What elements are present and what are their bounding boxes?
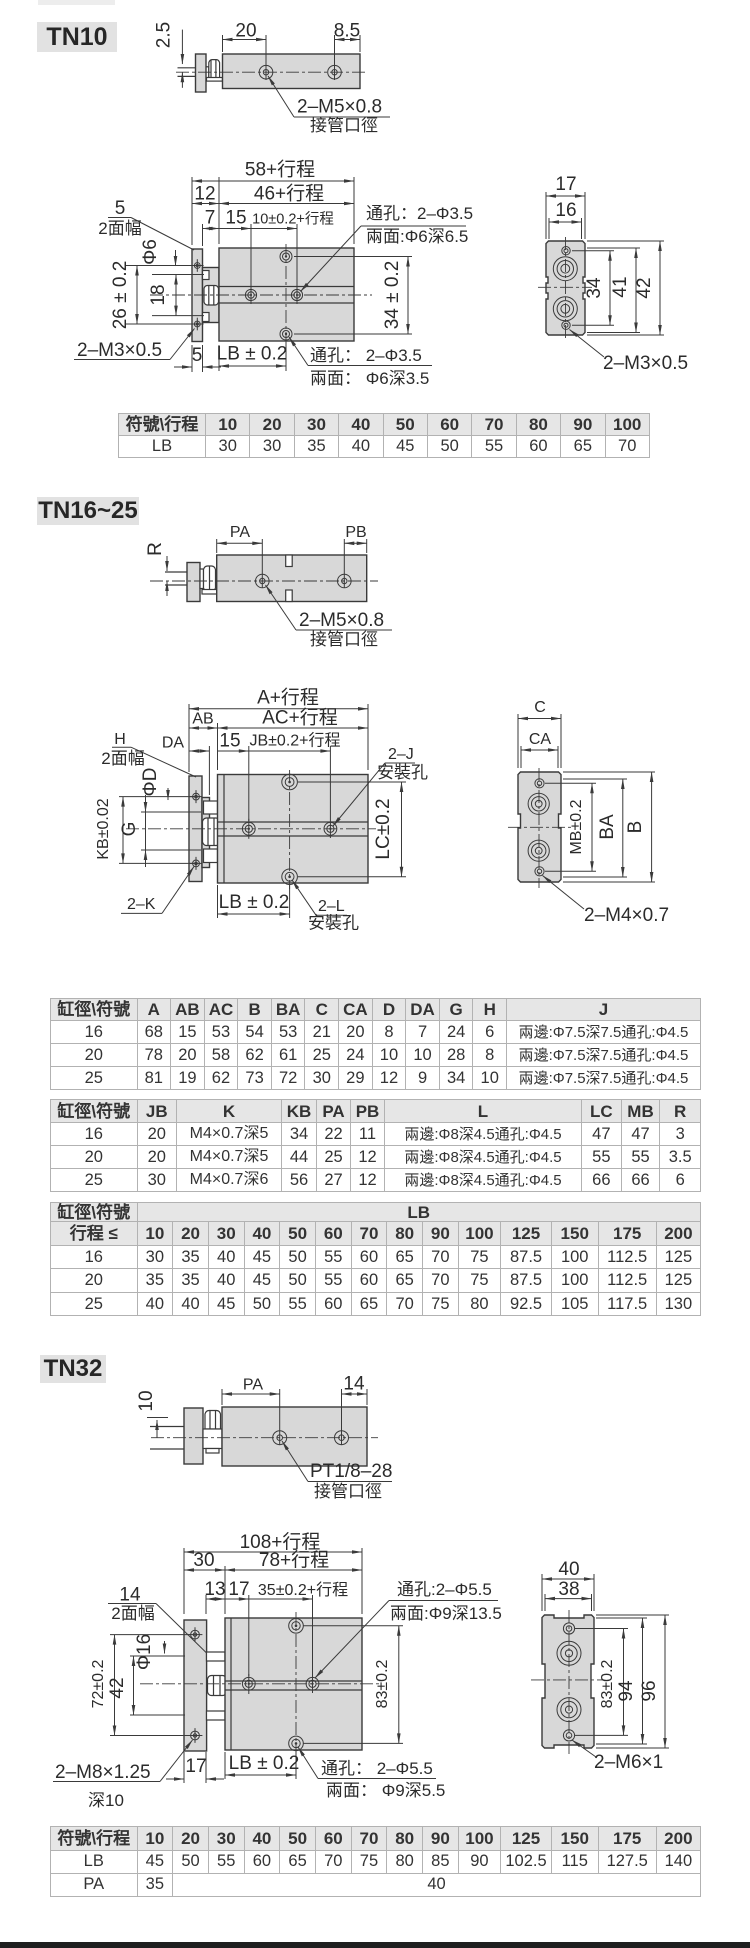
svg-text:18: 18 (148, 284, 169, 305)
svg-text:通孔：2–Φ3.5: 通孔：2–Φ3.5 (366, 204, 473, 223)
svg-text:2–M3×0.5: 2–M3×0.5 (77, 340, 162, 361)
svg-text:83±0.2: 83±0.2 (374, 1659, 391, 1708)
svg-text:14: 14 (119, 1585, 141, 1606)
svg-text:7: 7 (205, 208, 216, 229)
svg-text:2–M5×0.8: 2–M5×0.8 (297, 97, 382, 118)
svg-text:46+行程: 46+行程 (254, 183, 324, 205)
svg-text:5: 5 (115, 198, 126, 219)
svg-text:KB±0.02: KB±0.02 (95, 798, 112, 859)
svg-text:2面幅: 2面幅 (111, 1604, 154, 1623)
svg-text:2–K: 2–K (127, 896, 156, 913)
svg-text:58+行程: 58+行程 (245, 159, 315, 181)
svg-text:15: 15 (219, 731, 240, 752)
svg-text:15: 15 (225, 208, 246, 229)
svg-text:PT1/8–28: PT1/8–28 (310, 1461, 392, 1482)
svg-text:通孔： 2–Φ3.5: 通孔： 2–Φ3.5 (310, 346, 422, 365)
svg-text:12: 12 (194, 184, 215, 205)
svg-text:DA: DA (162, 735, 185, 752)
svg-text:2面幅: 2面幅 (98, 219, 141, 238)
svg-text:R: R (145, 542, 166, 556)
svg-text:Φ16: Φ16 (134, 1634, 155, 1670)
svg-text:2–M5×0.8: 2–M5×0.8 (299, 610, 384, 631)
svg-text:2面幅: 2面幅 (101, 749, 144, 768)
svg-text:安裝孔: 安裝孔 (377, 763, 428, 782)
svg-text:兩面： Φ6深3.5: 兩面： Φ6深3.5 (310, 369, 429, 388)
svg-text:Φ6: Φ6 (140, 239, 161, 265)
svg-text:深10: 深10 (88, 1791, 124, 1810)
svg-text:AB: AB (192, 710, 213, 727)
svg-text:38: 38 (558, 1579, 579, 1600)
svg-text:78+行程: 78+行程 (259, 1549, 329, 1571)
svg-text:2–M6×1: 2–M6×1 (594, 1752, 663, 1773)
svg-text:42: 42 (107, 1677, 128, 1698)
svg-text:10±0.2+行程: 10±0.2+行程 (252, 210, 334, 227)
svg-text:26 ± 0.2: 26 ± 0.2 (110, 261, 131, 330)
svg-text:2–L: 2–L (318, 898, 345, 915)
svg-text:94: 94 (616, 1680, 637, 1702)
svg-text:16: 16 (555, 200, 576, 221)
svg-text:C: C (534, 699, 546, 716)
svg-text:17: 17 (228, 1579, 249, 1600)
svg-text:接管口徑: 接管口徑 (310, 630, 378, 649)
svg-text:34 ± 0.2: 34 ± 0.2 (382, 261, 403, 330)
svg-text:35±0.2+行程: 35±0.2+行程 (258, 1581, 348, 1599)
svg-text:CA: CA (529, 731, 552, 748)
svg-text:LB ± 0.2: LB ± 0.2 (217, 344, 288, 365)
svg-text:17: 17 (185, 1756, 206, 1777)
svg-text:14: 14 (343, 1374, 365, 1395)
svg-text:40: 40 (558, 1559, 579, 1580)
svg-text:2–M4×0.7: 2–M4×0.7 (584, 905, 669, 926)
svg-text:AC+行程: AC+行程 (262, 706, 338, 728)
svg-text:通孔:2–Φ5.5: 通孔:2–Φ5.5 (397, 1580, 492, 1599)
svg-text:兩面:Φ9深13.5: 兩面:Φ9深13.5 (390, 1604, 502, 1623)
svg-text:JB±0.2+行程: JB±0.2+行程 (249, 732, 340, 750)
svg-text:MB±0.2: MB±0.2 (568, 799, 585, 854)
svg-text:接管口徑: 接管口徑 (310, 116, 378, 135)
svg-text:安裝孔: 安裝孔 (308, 914, 359, 933)
svg-text:ΦD: ΦD (140, 768, 161, 797)
svg-text:30: 30 (193, 1550, 214, 1571)
svg-text:5: 5 (192, 345, 203, 366)
svg-text:PA: PA (243, 1377, 263, 1394)
svg-text:20: 20 (235, 21, 256, 42)
svg-text:BA: BA (597, 814, 618, 840)
svg-text:41: 41 (610, 276, 631, 297)
svg-text:A+行程: A+行程 (257, 687, 319, 709)
svg-text:42: 42 (634, 277, 655, 298)
svg-text:PB: PB (345, 524, 366, 541)
svg-text:13: 13 (204, 1579, 225, 1600)
svg-text:接管口徑: 接管口徑 (314, 1482, 382, 1501)
svg-text:LC±0.2: LC±0.2 (373, 798, 394, 859)
svg-text:10: 10 (136, 1390, 157, 1411)
svg-text:2.5: 2.5 (154, 22, 175, 48)
svg-text:83±0.2: 83±0.2 (599, 1659, 616, 1708)
svg-text:通孔： 2–Φ5.5: 通孔： 2–Φ5.5 (321, 1759, 433, 1778)
svg-text:兩面:Φ6深6.5: 兩面:Φ6深6.5 (366, 227, 468, 246)
svg-text:2–M8×1.25: 2–M8×1.25 (55, 1762, 151, 1783)
svg-text:PA: PA (230, 524, 250, 541)
svg-text:34: 34 (584, 277, 605, 299)
svg-text:B: B (625, 821, 646, 834)
svg-text:72±0.2: 72±0.2 (90, 1659, 107, 1708)
svg-text:96: 96 (639, 1680, 660, 1701)
svg-text:8.5: 8.5 (334, 21, 360, 42)
svg-text:LB ± 0.2: LB ± 0.2 (219, 892, 290, 913)
svg-text:G: G (119, 822, 140, 837)
svg-text:2–M3×0.5: 2–M3×0.5 (603, 353, 688, 374)
svg-text:17: 17 (555, 174, 576, 195)
svg-text:2–J: 2–J (388, 746, 414, 763)
svg-text:LB ± 0.2: LB ± 0.2 (229, 1753, 300, 1774)
svg-text:兩面： Φ9深5.5: 兩面： Φ9深5.5 (326, 1781, 445, 1800)
svg-text:H: H (114, 731, 126, 748)
